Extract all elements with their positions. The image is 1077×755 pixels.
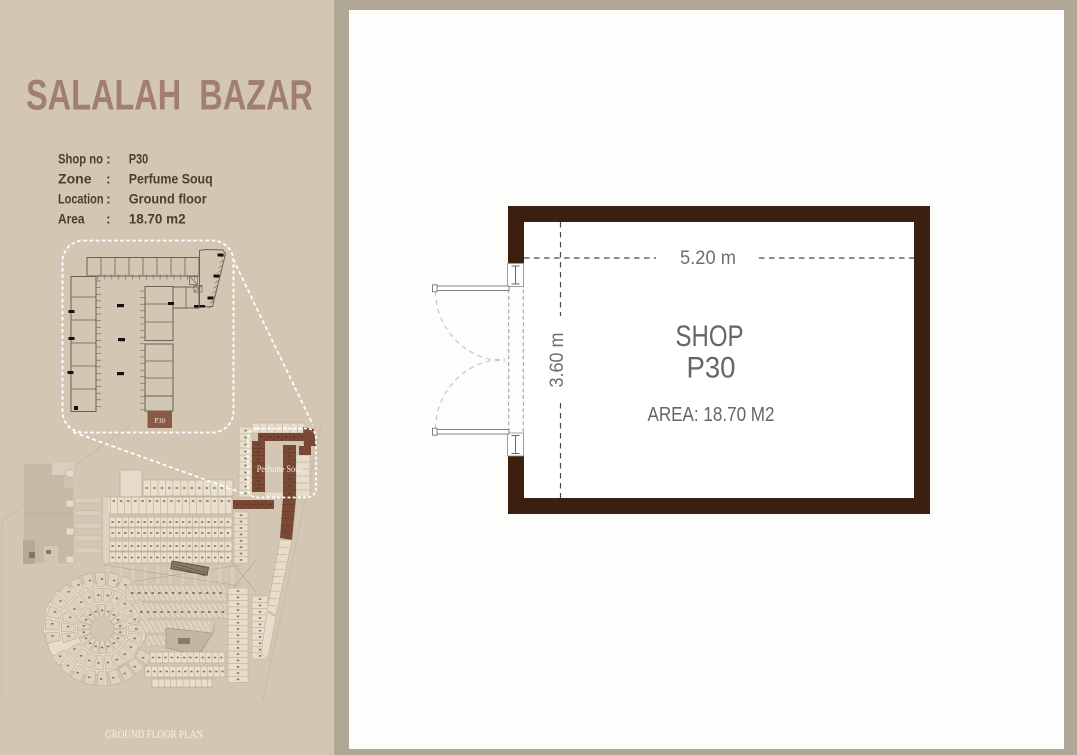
svg-text:Perfume Souq: Perfume Souq — [257, 464, 304, 475]
svg-text:P30: P30 — [154, 417, 165, 425]
svg-text:5.20 m: 5.20 m — [680, 248, 736, 269]
svg-text:SHOP: SHOP — [676, 320, 744, 353]
svg-text:P30: P30 — [687, 352, 736, 385]
svg-text:GROUND FLOOR PLAN: GROUND FLOOR PLAN — [105, 729, 204, 741]
svg-text:AREA: 18.70 M2: AREA: 18.70 M2 — [648, 404, 775, 426]
svg-text:3.60 m: 3.60 m — [547, 333, 568, 388]
